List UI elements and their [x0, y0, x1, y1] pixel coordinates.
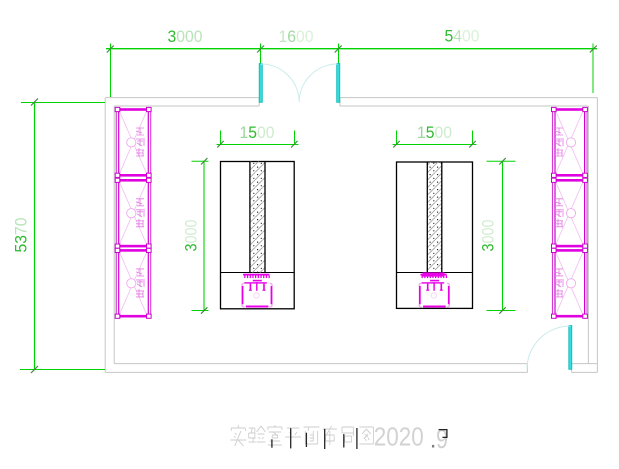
- svg-text:5370: 5370: [13, 218, 31, 253]
- svg-text:3000: 3000: [183, 220, 201, 252]
- svg-text:5400: 5400: [445, 28, 480, 46]
- svg-text:1500: 1500: [240, 124, 275, 142]
- svg-text:2020: 2020: [374, 422, 424, 452]
- svg-text:3000: 3000: [168, 28, 203, 46]
- svg-text:3000: 3000: [480, 220, 498, 252]
- svg-text:1600: 1600: [279, 28, 314, 46]
- svg-text:1500: 1500: [417, 124, 452, 142]
- svg-text:9: 9: [436, 424, 448, 454]
